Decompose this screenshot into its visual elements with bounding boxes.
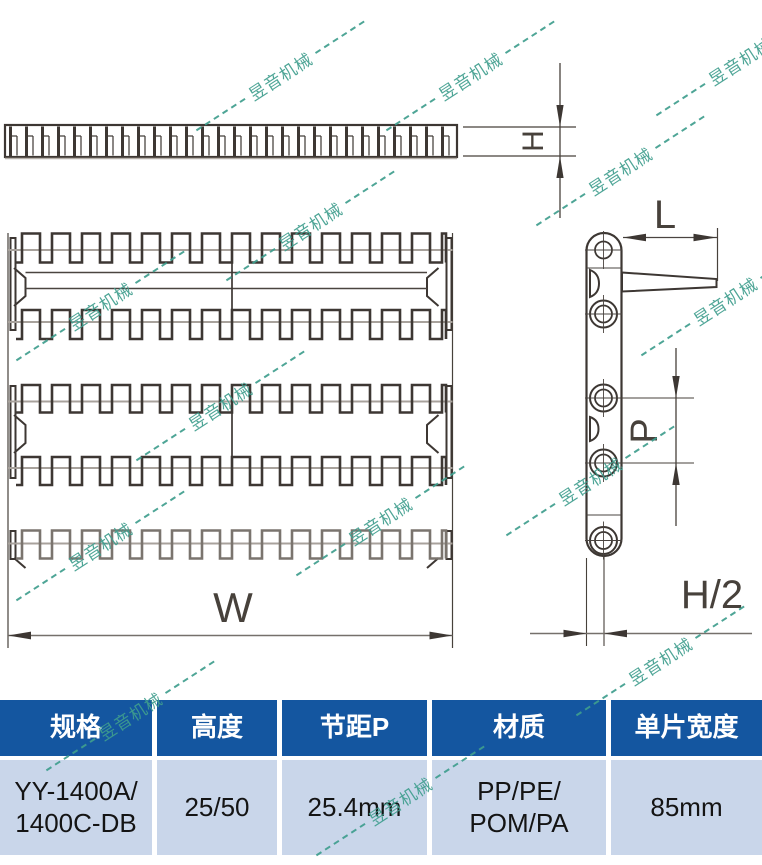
dimension-h: H	[463, 63, 576, 218]
header-height: 高度	[157, 700, 277, 756]
dimension-label-w: W	[213, 584, 253, 631]
arrowhead-icon	[564, 630, 587, 638]
header-material: 材质	[432, 700, 606, 756]
header-width: 单片宽度	[611, 700, 762, 756]
dimension-label-p: P	[624, 418, 666, 443]
dimension-w: W	[8, 584, 453, 639]
pin-slot	[590, 417, 599, 441]
spec-table: 规格 高度 节距P 材质 单片宽度 YY-1400A/ 1400C-DB 25/…	[0, 700, 762, 855]
dimension-label-l: L	[654, 193, 676, 237]
flight	[622, 273, 717, 292]
belt-technical-drawing: H	[0, 0, 762, 700]
cell-pitch: 25.4mm	[282, 760, 427, 855]
header-pitch: 节距P	[282, 700, 427, 756]
arrowhead-icon	[672, 376, 679, 398]
arrowhead-icon	[604, 630, 627, 638]
header-spec: 规格	[0, 700, 152, 756]
arrowhead-icon	[556, 156, 563, 178]
dimension-h2: H/2	[530, 556, 752, 646]
pin-slot	[590, 270, 599, 297]
dimension-p: P	[604, 348, 694, 526]
cell-width: 85mm	[611, 760, 762, 855]
arrowhead-icon	[8, 632, 31, 640]
dimension-label-h: H	[517, 130, 550, 152]
arrowhead-icon	[694, 234, 717, 242]
arrowhead-icon	[430, 632, 453, 640]
cell-height: 25/50	[157, 760, 277, 855]
belt-edge-view	[5, 125, 457, 159]
cell-spec: YY-1400A/ 1400C-DB	[0, 760, 152, 855]
link-side-view	[585, 231, 717, 560]
side-tabs	[14, 268, 439, 568]
spec-sheet-page: { "watermark": { "text": "昱音机械", "color"…	[0, 0, 762, 855]
arrowhead-icon	[623, 234, 646, 242]
dimension-label-h2: H/2	[681, 573, 743, 617]
arrowhead-icon	[556, 105, 563, 127]
spec-table-data-row: YY-1400A/ 1400C-DB 25/50 25.4mm PP/PE/ P…	[0, 760, 762, 855]
cell-material: PP/PE/ POM/PA	[432, 760, 606, 855]
dimension-l: L	[623, 193, 718, 281]
arrowhead-icon	[672, 463, 679, 485]
spec-table-header-row: 规格 高度 节距P 材质 单片宽度	[0, 700, 762, 756]
